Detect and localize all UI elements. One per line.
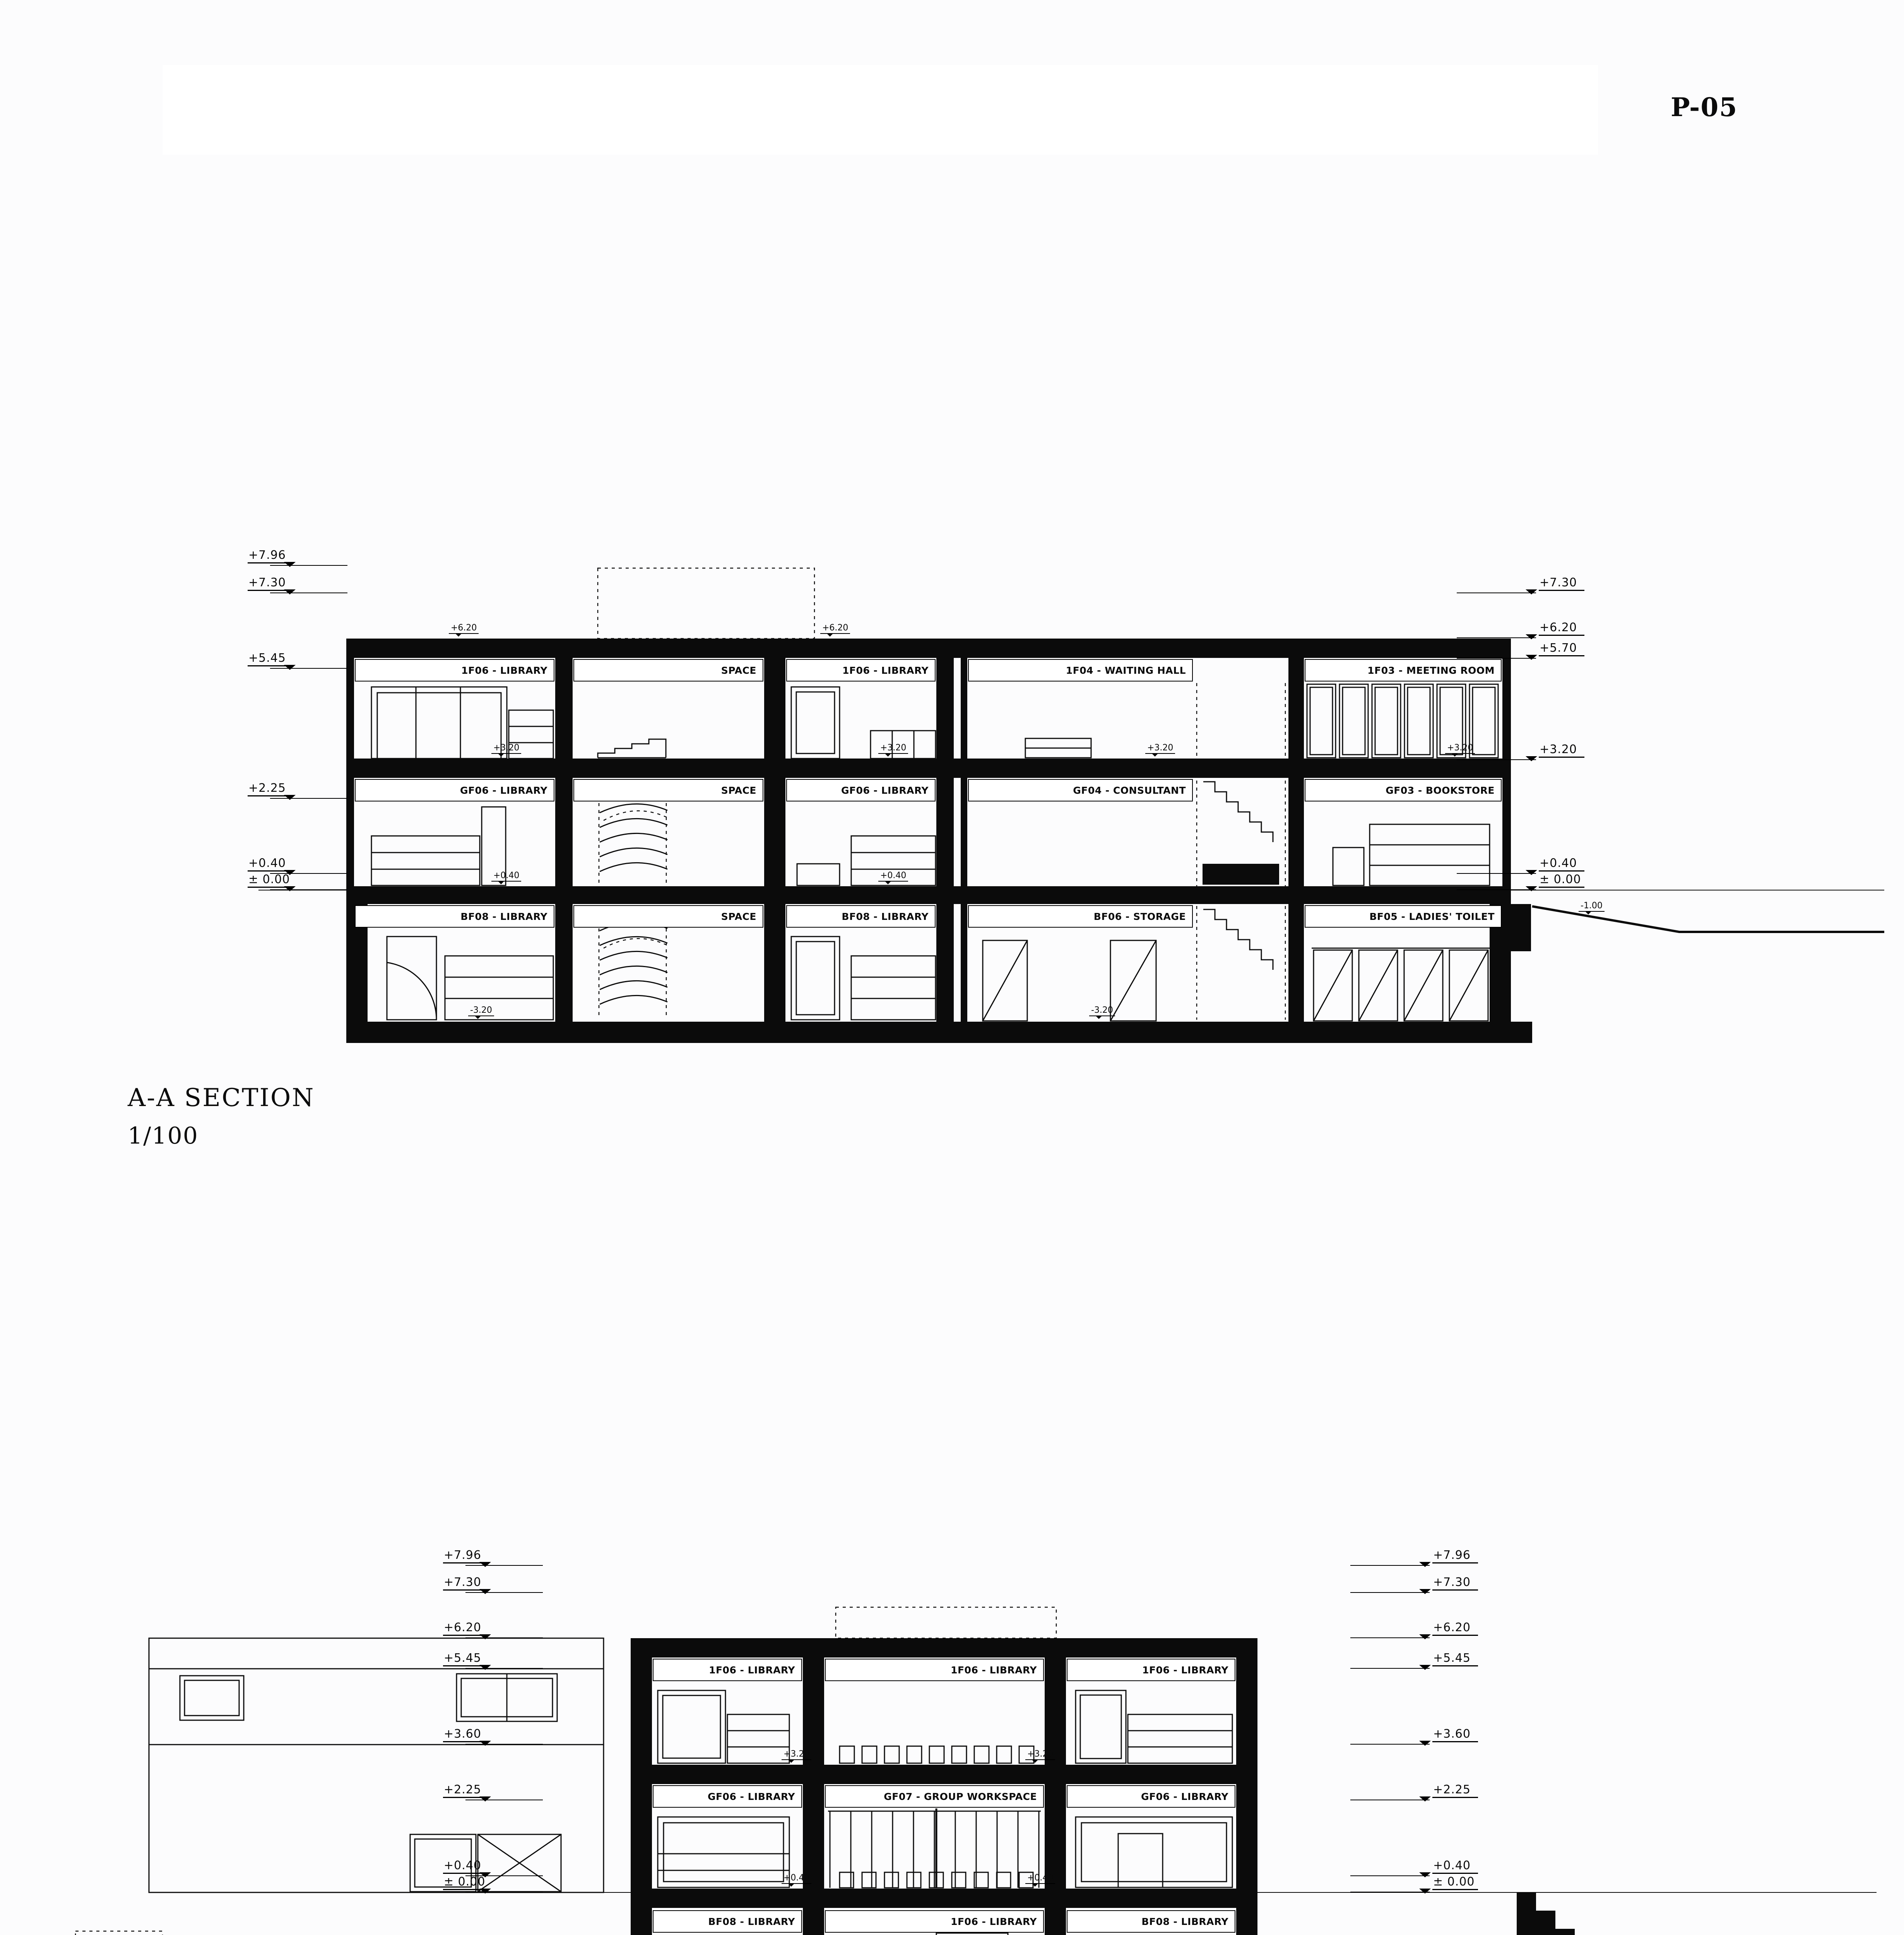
room-label: 1F06 - LIBRARY [825,1910,1044,1933]
elevation-marker: ± 0.00 [1408,1878,1507,1892]
level-tick: +3.20 [1025,1750,1055,1760]
level-tick: +0.40 [782,1874,811,1884]
level-tick: +3.20 [782,1750,811,1760]
drawing-sheet: P-05 A-A SECTION 1/100 B-B SECTION 1/100… [0,0,1904,1935]
elevation-marker: ± 0.00 [1515,876,1613,890]
elevation-marker: ± 0.00 [248,876,346,890]
elevation-marker: +6.20 [443,1624,542,1638]
room-label: SPACE [573,905,763,928]
room-label: GF06 - LIBRARY [1067,1785,1235,1808]
elevation-marker: ± 0.00 [443,1878,542,1892]
room-label: 1F03 - MEETING ROOM [1305,659,1502,682]
section-aa-scale: 1/100 [128,1122,198,1149]
room-label: 1F06 - LIBRARY [786,659,936,682]
level-tick: +6.20 [820,624,850,634]
elevation-marker: +7.96 [248,552,346,566]
elevation-marker: +7.30 [1408,1579,1507,1593]
elevation-marker: +0.40 [1515,860,1613,874]
elevation-marker: +3.20 [1515,746,1613,760]
elevation-marker: +7.96 [1408,1552,1507,1566]
elevation-marker: +2.25 [443,1786,542,1800]
level-tick: -3.20 [1089,1006,1115,1016]
elevation-marker: +0.40 [443,1862,542,1876]
room-label: 1F04 - WAITING HALL [968,659,1193,682]
elevation-marker: +0.40 [248,860,346,874]
elevation-marker: +5.45 [1408,1655,1507,1669]
room-label: GF06 - LIBRARY [355,779,554,801]
sheet-number: P-05 [1671,92,1738,122]
room-label: GF06 - LIBRARY [786,779,936,801]
room-label: GF07 - GROUP WORKSPACE [825,1785,1044,1808]
room-label: BF08 - LIBRARY [653,1910,802,1933]
elevation-marker: +6.20 [1515,624,1613,638]
elevation-marker: +3.60 [1408,1731,1507,1745]
elevation-marker: +6.20 [1408,1624,1507,1638]
room-label: SPACE [573,779,763,801]
section-aa-title: A-A SECTION [128,1084,315,1112]
room-label: GF04 - CONSULTANT [968,779,1193,801]
level-tick: +0.40 [1025,1874,1055,1884]
elevation-marker: +3.60 [443,1731,542,1745]
room-label: BF08 - LIBRARY [1067,1910,1235,1933]
level-tick: +3.20 [878,744,908,754]
room-label: GF03 - BOOKSTORE [1305,779,1502,801]
elevation-marker: +7.96 [443,1552,542,1566]
aa-interior-lines [371,684,1498,1021]
room-label: 1F06 - LIBRARY [825,1659,1044,1681]
level-tick: +3.20 [1145,744,1175,754]
elevation-marker: +2.25 [248,785,346,799]
level-tick: +3.20 [491,744,521,754]
room-label: 1F06 - LIBRARY [355,659,554,682]
terrain-level-label: -1.00 [1579,902,1605,912]
room-label: BF08 - LIBRARY [355,905,554,928]
elevation-marker: +7.30 [248,579,346,593]
section-linework [0,0,1904,1935]
level-tick: -3.20 [468,1006,494,1016]
room-label: BF05 - LADIES' TOILET [1305,905,1502,928]
level-tick: +0.40 [491,872,521,882]
level-tick: +3.20 [1445,744,1475,754]
elevation-marker: +7.30 [443,1579,542,1593]
room-label: BF06 - STORAGE [968,905,1193,928]
room-label: GF06 - LIBRARY [653,1785,802,1808]
elevation-marker: +5.45 [248,655,346,669]
room-label: BF08 - LIBRARY [786,905,936,928]
elevation-marker: +7.30 [1515,579,1613,593]
elevation-marker: +2.25 [1408,1786,1507,1800]
elevation-marker: +0.40 [1408,1862,1507,1876]
level-tick: +6.20 [449,624,479,634]
aa-cut-structure [346,639,1532,1043]
room-label: SPACE [573,659,763,682]
elevation-marker: +5.70 [1515,645,1613,659]
room-label: 1F06 - LIBRARY [1067,1659,1235,1681]
elevation-marker: +5.45 [443,1655,542,1669]
level-tick: +0.40 [878,872,908,882]
room-label: 1F06 - LIBRARY [653,1659,802,1681]
